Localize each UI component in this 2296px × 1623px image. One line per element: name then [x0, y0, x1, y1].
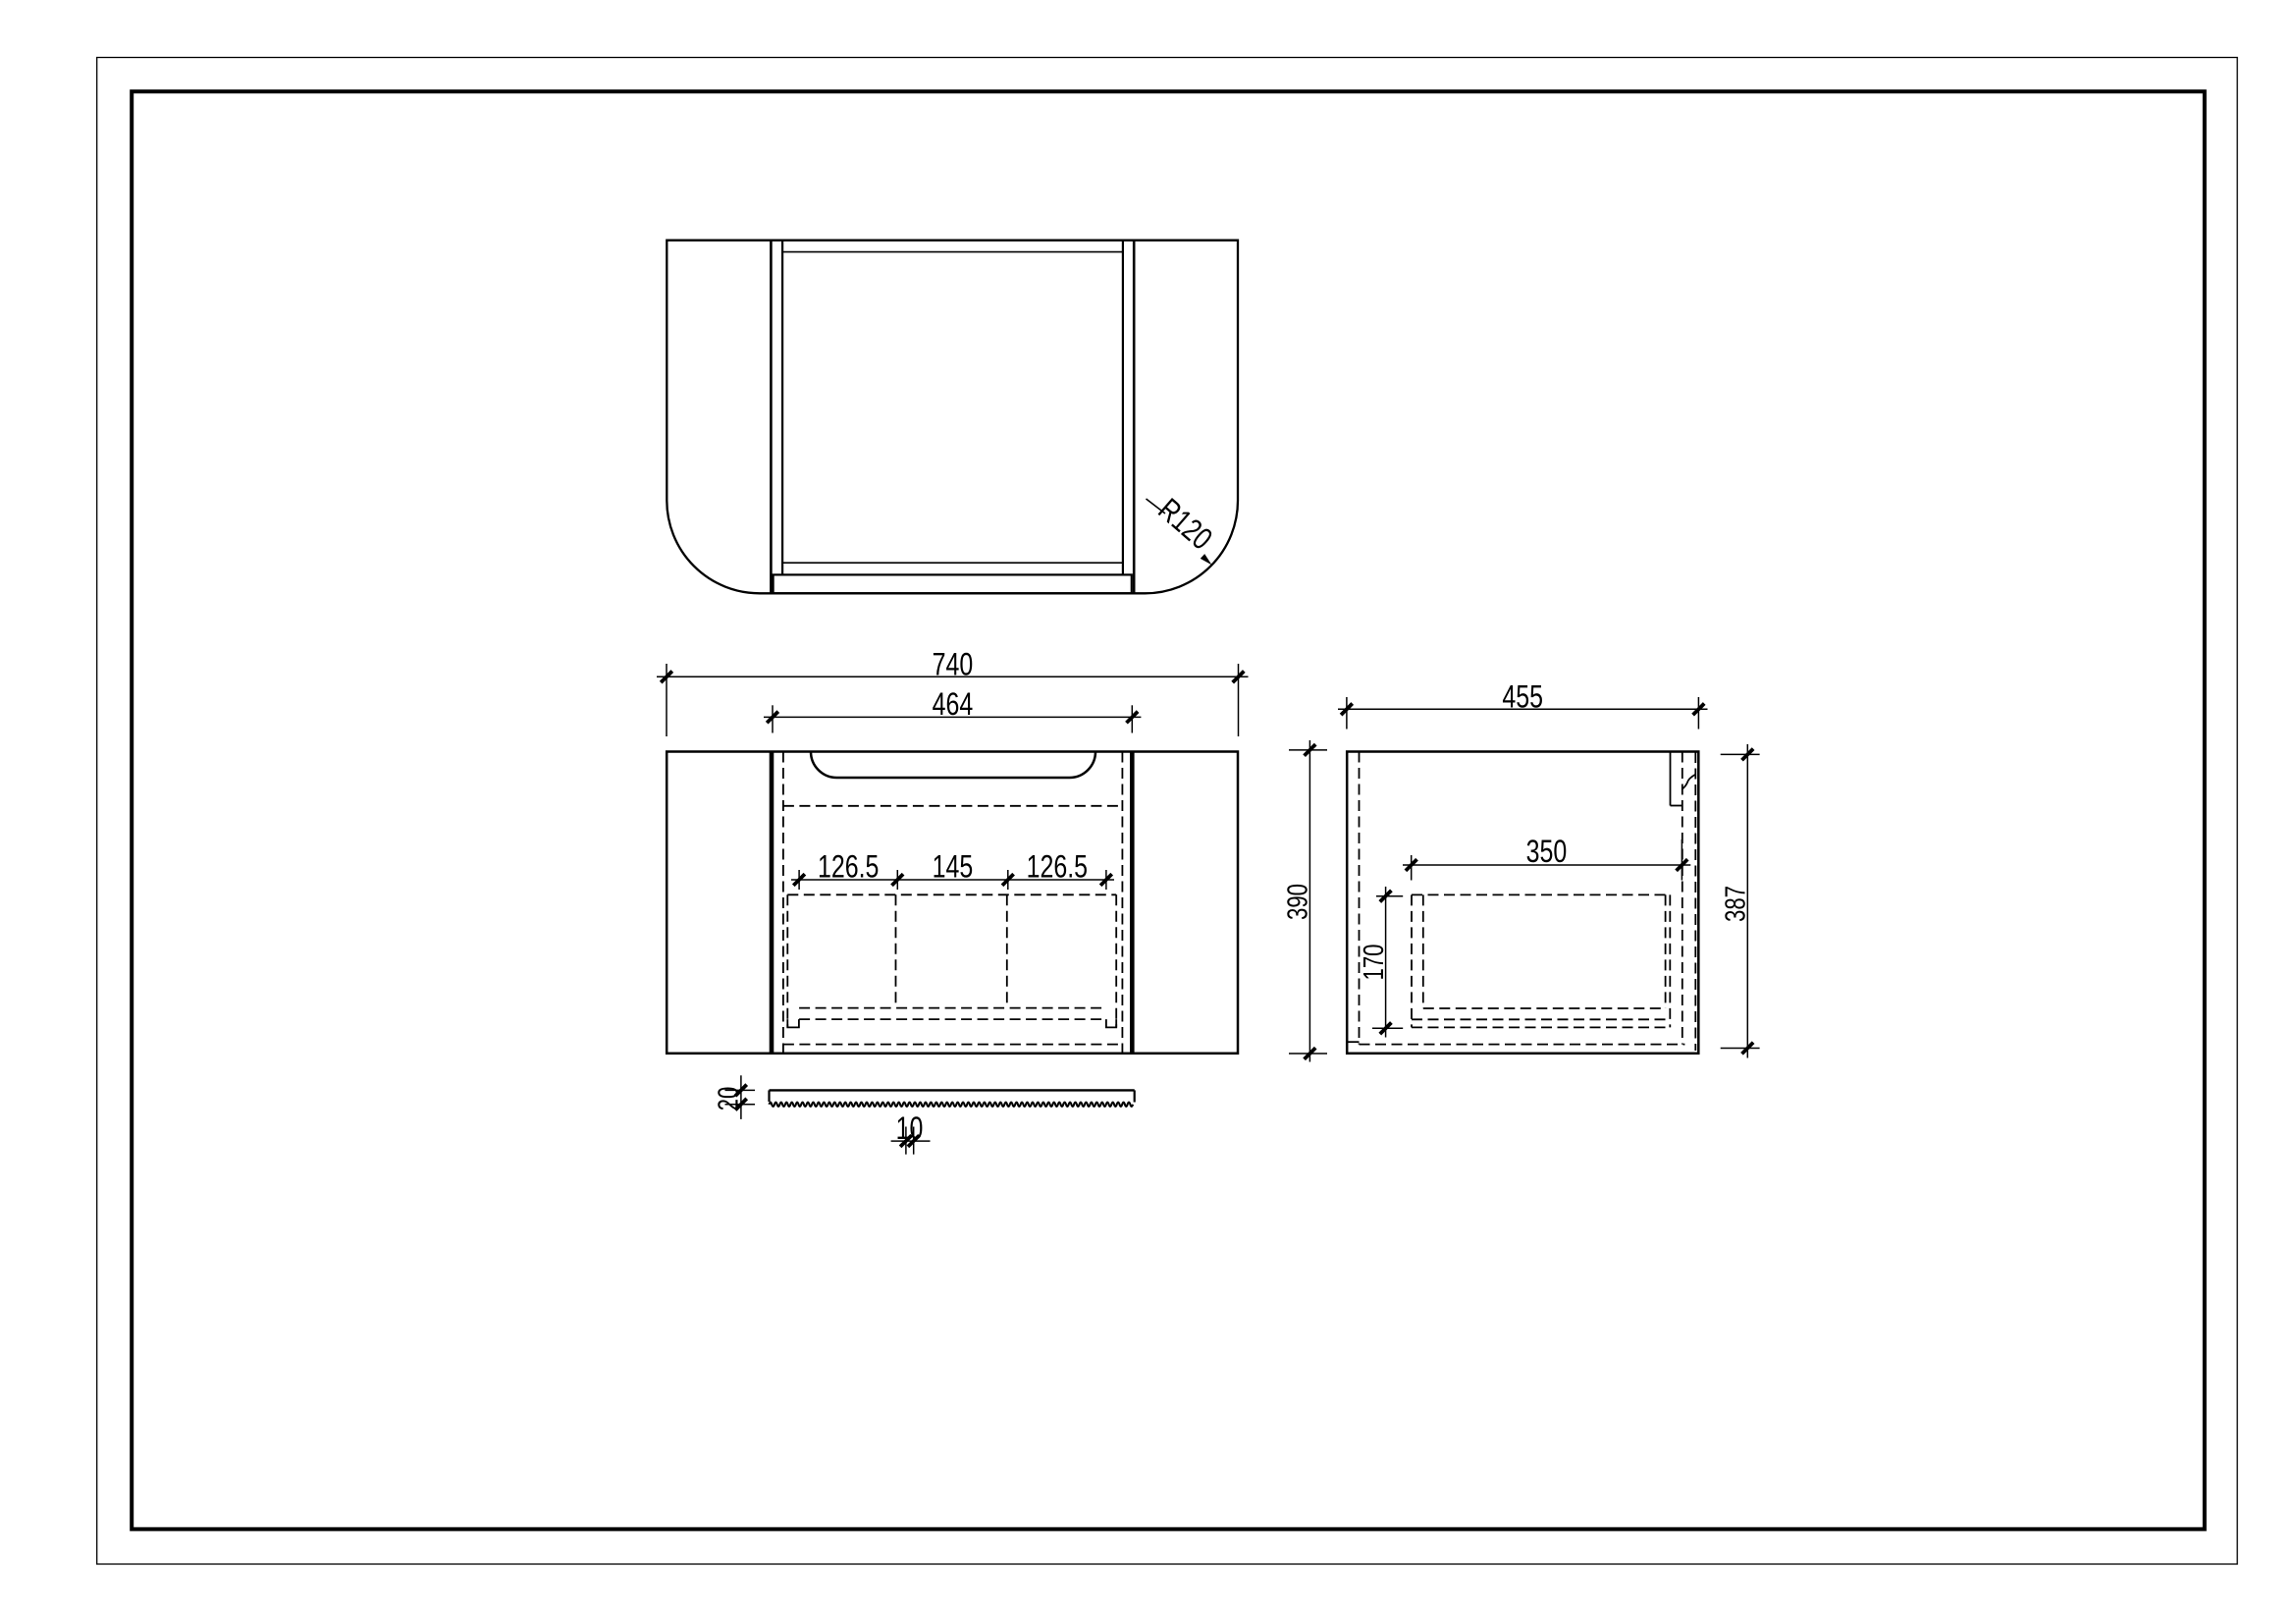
svg-text:170: 170	[1359, 944, 1389, 980]
svg-text:390: 390	[1283, 884, 1313, 920]
svg-text:20: 20	[714, 1087, 744, 1111]
svg-text:455: 455	[1502, 679, 1543, 715]
svg-text:464: 464	[933, 687, 974, 723]
svg-text:740: 740	[933, 647, 974, 682]
svg-text:350: 350	[1526, 835, 1568, 870]
svg-text:126.5: 126.5	[1027, 850, 1088, 886]
svg-text:10: 10	[896, 1111, 924, 1147]
svg-text:145: 145	[933, 850, 974, 886]
svg-text:126.5: 126.5	[818, 850, 879, 886]
svg-text:387: 387	[1721, 886, 1751, 922]
